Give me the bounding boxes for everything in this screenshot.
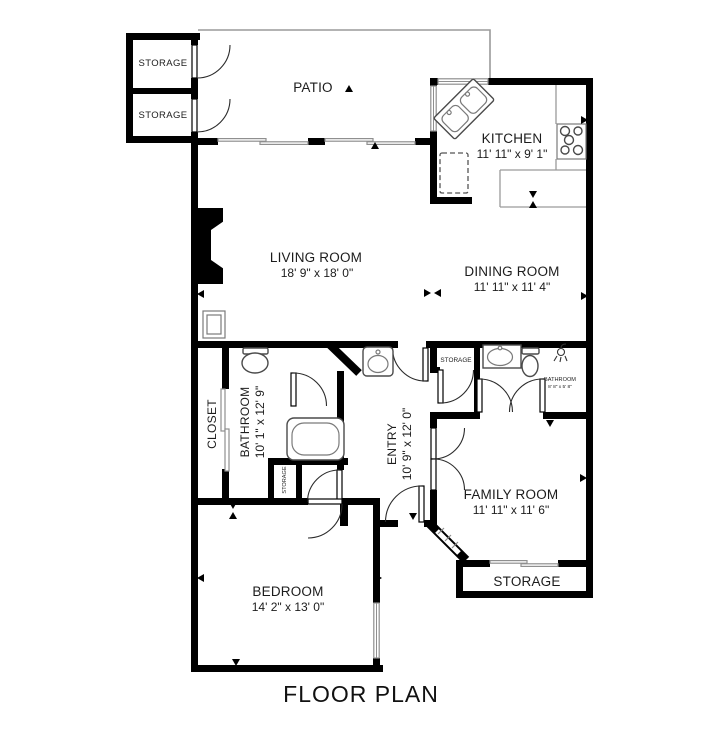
bathroom-main-hall-door [308,470,343,502]
bathtub [287,418,344,460]
floor-plan-canvas: STORAGE STORAGE PATIO KITCHEN 11' 11" x … [0,0,715,750]
toilet-main [242,348,268,373]
bedroom-label: BEDROOM [252,584,323,599]
bedroom-dims: 14' 2" x 13' 0" [252,600,324,614]
page-title: FLOOR PLAN [283,681,439,707]
hall-vanity-sink [363,347,393,376]
kitchen-label: KITCHEN [482,131,543,146]
bathroom-second-doors [477,379,545,412]
storage-a-door [192,45,230,78]
patio-boundary [198,30,490,78]
bathroom-main-dims: 10' 1" x 12' 9" [253,386,267,458]
family-room-label: FAMILY ROOM [464,487,559,502]
kitchen-dims: 11' 11" x 9' 1" [477,147,548,161]
bathroom-second-sink [483,345,521,368]
family-room-double-door [431,428,465,490]
family-room-dims: 11' 11" x 11' 6" [473,503,549,517]
closet-sliding-door [221,389,229,471]
storage-top-upper-label: STORAGE [138,58,187,69]
stove [557,124,586,159]
patio-label: PATIO [293,80,333,95]
storage-top-lower-label: STORAGE [138,110,187,121]
bathroom-second-dims: 8' 8" x 5' 8" [548,384,572,390]
dining-room-dims: 11' 11" x 11' 4" [474,280,550,294]
bedroom-door [308,499,342,538]
refrigerator [440,153,468,193]
media-niche [203,311,225,338]
entry-top-door [393,348,429,381]
front-door [386,486,425,522]
living-room-dims: 18' 9" x 18' 0" [281,266,353,280]
storage-hall-label: STORAGE [440,357,471,364]
closet-label: CLOSET [205,399,219,449]
entry-label: ENTRY [385,423,399,465]
toilet-second [522,348,539,377]
living-room-label: LIVING ROOM [270,250,362,265]
floor-plan-drawing: STORAGE STORAGE PATIO KITCHEN 11' 11" x … [0,0,715,750]
dining-room-label: DINING ROOM [464,264,559,279]
fireplace [191,208,224,284]
storage-bath-label: STORAGE [282,466,288,494]
storage-family-label: STORAGE [493,574,560,589]
labels: STORAGE STORAGE PATIO KITCHEN 11' 11" x … [138,58,576,707]
bathroom-main-inner-door [291,373,327,406]
bathroom-main-label: BATHROOM [238,387,252,458]
entry-dims: 10' 9" x 12' 0" [400,408,414,480]
storage-hall-door [438,370,474,403]
bathroom-second-label: BATHROOM [544,377,576,383]
storage-b-door [192,99,230,132]
